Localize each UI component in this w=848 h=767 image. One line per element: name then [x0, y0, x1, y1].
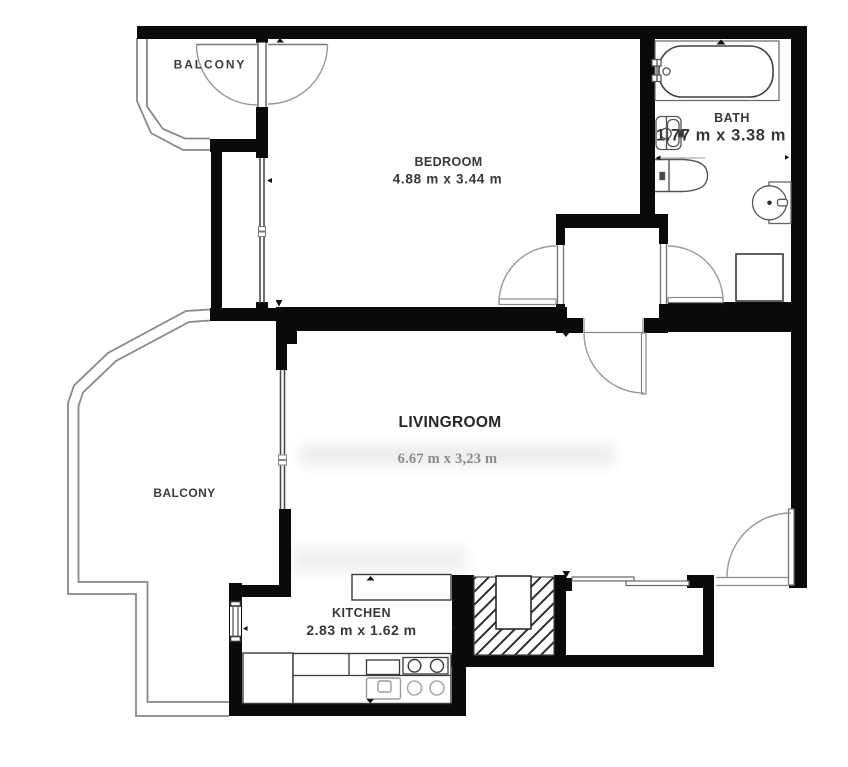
svg-text:LIVINGROOM: LIVINGROOM [399, 414, 502, 431]
svg-text:KITCHEN: KITCHEN [332, 606, 391, 620]
svg-text:BALCONY: BALCONY [174, 58, 247, 72]
svg-text:BEDROOM: BEDROOM [414, 155, 482, 169]
svg-text:BATH: BATH [714, 111, 750, 125]
svg-text:BALCONY: BALCONY [153, 486, 215, 500]
svg-text:1.77 m x 3.38 m: 1.77 m x 3.38 m [656, 127, 786, 145]
svg-text:2.83 m x 1.62 m: 2.83 m x 1.62 m [306, 622, 416, 638]
svg-text:6.67 m x 3,23 m: 6.67 m x 3,23 m [398, 451, 498, 467]
svg-text:4.88 m x 3.44 m: 4.88 m x 3.44 m [393, 172, 503, 187]
